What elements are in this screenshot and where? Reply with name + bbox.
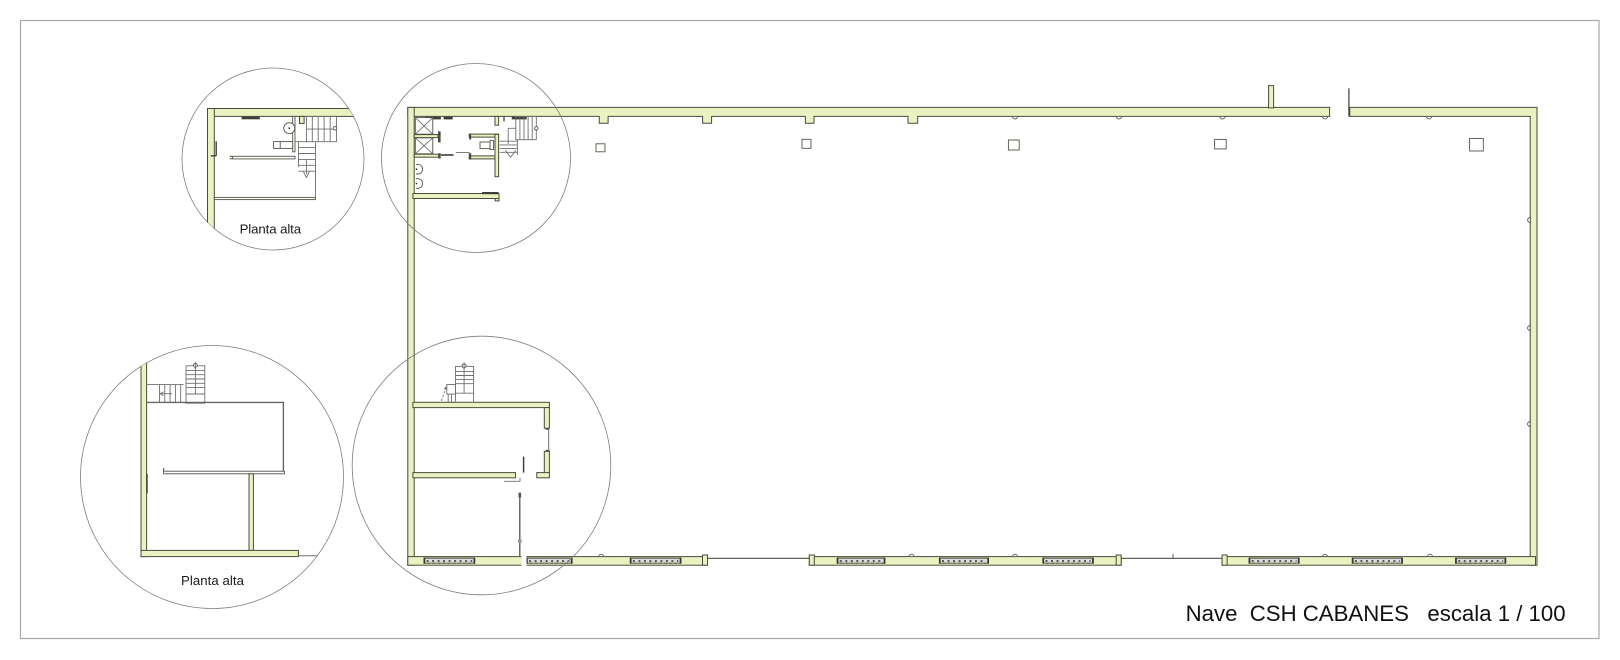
svg-text:Planta alta: Planta alta: [181, 573, 245, 588]
svg-text:Planta alta: Planta alta: [240, 222, 302, 237]
svg-text:Nave CSH CABANES escala 1 /: Nave CSH CABANES escala 1 / 100: [1186, 601, 1566, 626]
